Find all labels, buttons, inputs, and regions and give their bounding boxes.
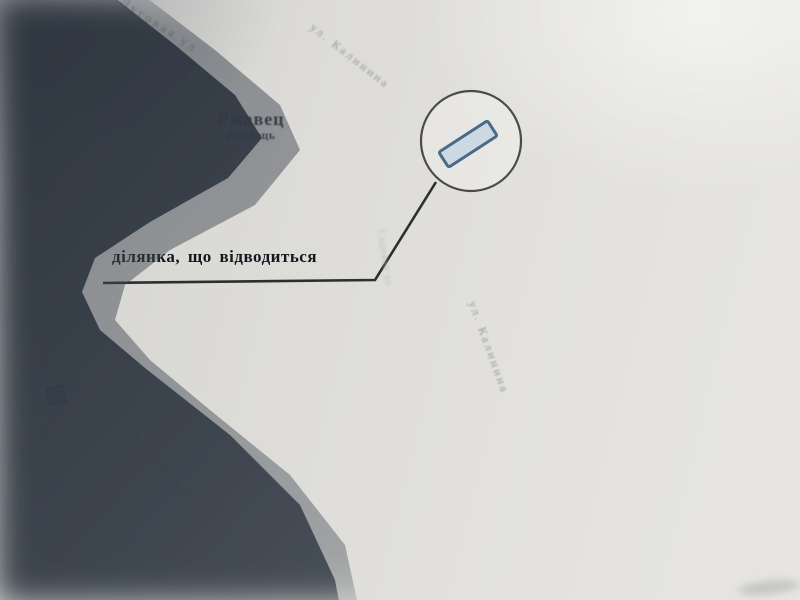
map-shapes (0, 0, 800, 600)
settlement-label: Ржавец Ржавець (183, 110, 319, 142)
photographed-map: Луговая ул ул. Калинина Садовая ул ул. К… (0, 0, 800, 600)
building-marker-icon (45, 384, 66, 405)
parcel-callout-label: ділянка, що відводиться (112, 247, 317, 267)
settlement-name-ru: Ржавец (183, 110, 319, 130)
settlement-name-uk: Ржавець (183, 130, 319, 142)
map-ink-layer: Луговая ул ул. Калинина Садовая ул ул. К… (0, 0, 800, 600)
